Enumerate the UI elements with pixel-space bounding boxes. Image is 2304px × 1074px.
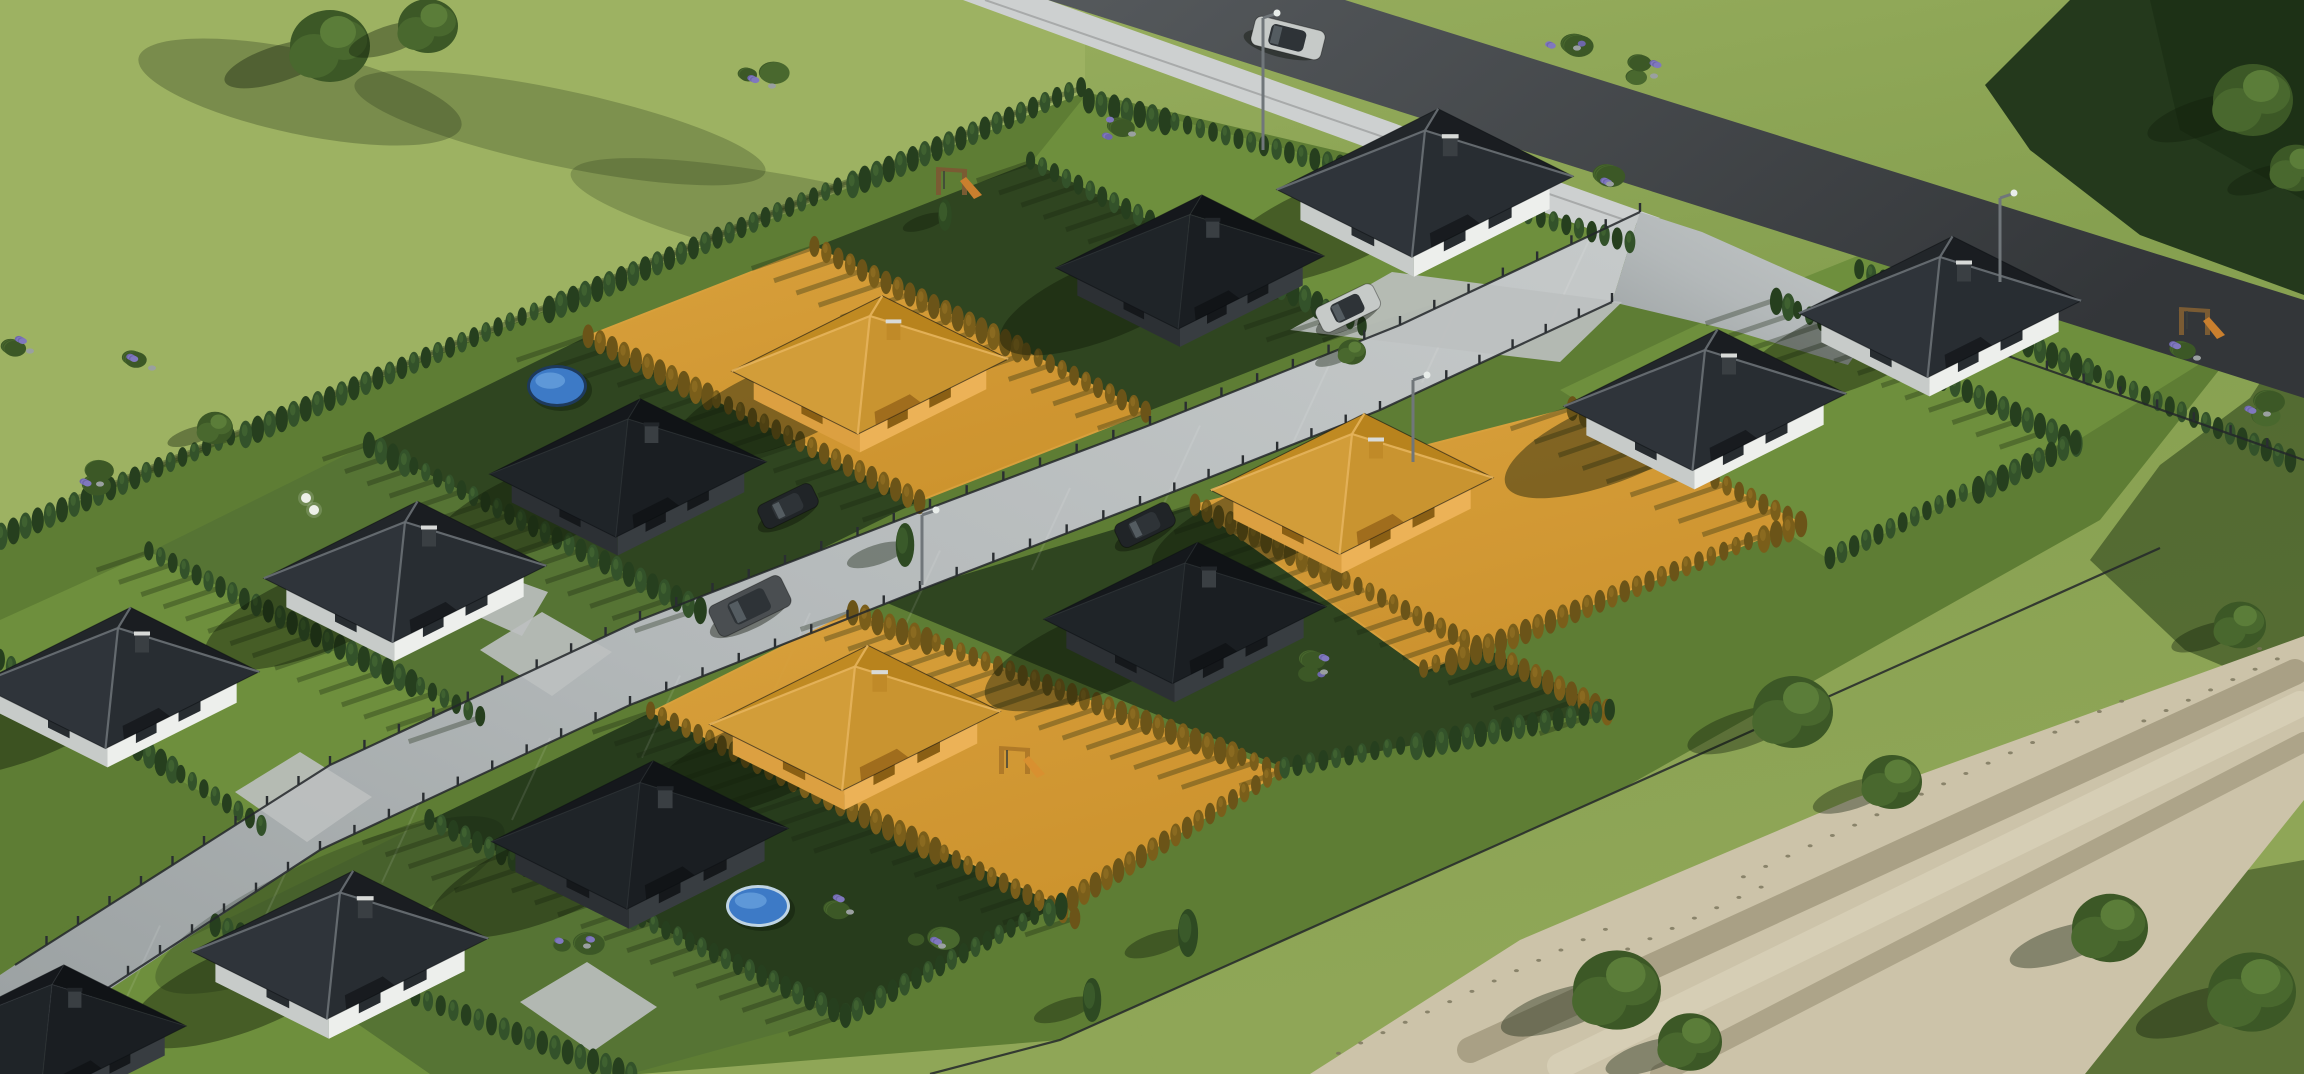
estate-scene-svg: [0, 0, 2304, 1074]
estate-aerial-render: [0, 0, 2304, 1074]
garden-globe-lamp-2: [306, 502, 322, 518]
